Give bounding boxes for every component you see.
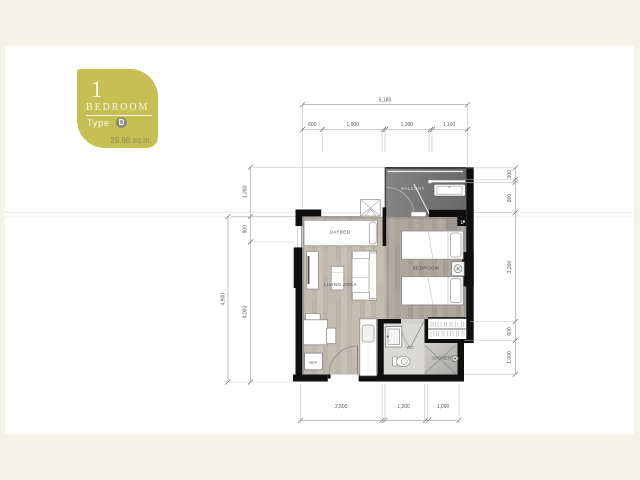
svg-text:4,000: 4,000 — [243, 306, 249, 319]
svg-text:LIVING AREA: LIVING AREA — [324, 282, 358, 287]
svg-text:1,200: 1,200 — [397, 404, 410, 410]
svg-text:3,200: 3,200 — [507, 261, 513, 274]
svg-text:5,180: 5,180 — [379, 98, 392, 104]
svg-text:800: 800 — [507, 194, 513, 203]
svg-text:4,900: 4,900 — [221, 293, 227, 306]
svg-text:2,500: 2,500 — [335, 404, 348, 410]
svg-text:BEDROOM: BEDROOM — [413, 265, 440, 270]
svg-text:SHOWER: SHOWER — [432, 355, 451, 360]
svg-text:900: 900 — [243, 225, 249, 234]
svg-text:1,100: 1,100 — [443, 122, 456, 128]
svg-text:600: 600 — [308, 122, 317, 128]
svg-text:REF: REF — [309, 360, 318, 365]
svg-text:300: 300 — [507, 170, 513, 179]
svg-text:1,300: 1,300 — [401, 122, 414, 128]
svg-text:DAYBED: DAYBED — [330, 230, 351, 235]
svg-text:1,280: 1,280 — [243, 185, 249, 198]
svg-text:1,090: 1,090 — [437, 404, 450, 410]
svg-text:WC: WC — [406, 345, 413, 350]
svg-text:600: 600 — [507, 327, 513, 336]
svg-text:1,000: 1,000 — [507, 351, 513, 364]
svg-text:1,900: 1,900 — [347, 122, 360, 128]
svg-text:BALCONY: BALCONY — [401, 186, 425, 191]
